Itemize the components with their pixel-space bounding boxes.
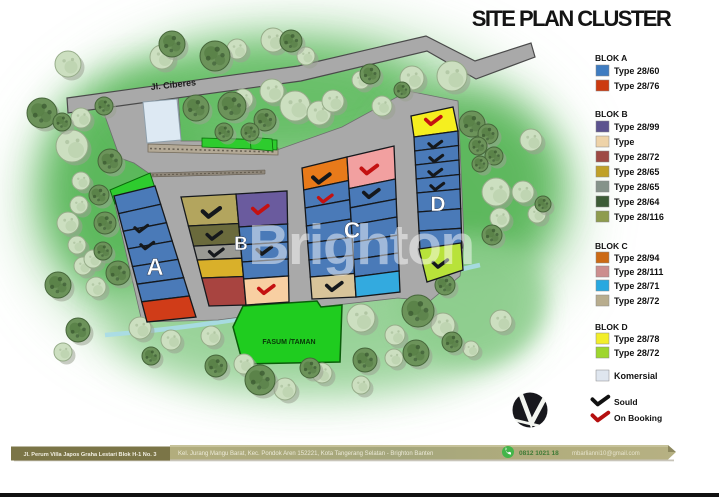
svg-text:SITE PLAN CLUSTER: SITE PLAN CLUSTER <box>472 6 672 31</box>
svg-text:Type 28/72: Type 28/72 <box>614 348 659 358</box>
svg-text:Type 28/116: Type 28/116 <box>614 212 664 222</box>
svg-text:Type 28/111: Type 28/111 <box>614 267 663 277</box>
svg-text:Jl. Perum Villa Japos Graha Le: Jl. Perum Villa Japos Graha Lestari Blok… <box>24 452 157 458</box>
svg-text:Type 28/78: Type 28/78 <box>614 334 659 344</box>
svg-text:A: A <box>146 254 163 281</box>
svg-text:Sould: Sould <box>614 397 638 407</box>
svg-text:BLOK D: BLOK D <box>595 322 628 332</box>
svg-text:Type 28/65: Type 28/65 <box>614 182 659 192</box>
svg-text:Type 28/71: Type 28/71 <box>614 281 659 291</box>
svg-text:Type 28/64: Type 28/64 <box>614 197 659 207</box>
svg-text:Type 28/72: Type 28/72 <box>614 152 659 162</box>
svg-text:FASUM /TAMAN: FASUM /TAMAN <box>262 339 315 346</box>
svg-text:Type 28/76: Type 28/76 <box>614 81 659 91</box>
svg-text:Type 28/65: Type 28/65 <box>614 167 659 177</box>
svg-text:Komersial: Komersial <box>614 371 658 381</box>
svg-text:On Booking: On Booking <box>614 413 662 423</box>
svg-text:Type 28/94: Type 28/94 <box>614 253 659 263</box>
svg-text:Type 28/60: Type 28/60 <box>614 66 659 76</box>
svg-text:BLOK A: BLOK A <box>595 53 627 63</box>
svg-text:BLOK B: BLOK B <box>595 109 628 119</box>
svg-text:BLOK C: BLOK C <box>595 241 628 251</box>
svg-text:Type: Type <box>614 137 634 147</box>
svg-text:Brighton: Brighton <box>248 213 473 277</box>
svg-text:0812 1021 18: 0812 1021 18 <box>519 450 559 457</box>
svg-text:Kel. Jurang Mangu Barat, Kec.: Kel. Jurang Mangu Barat, Kec. Pondok Are… <box>178 451 433 457</box>
svg-text:B: B <box>234 234 248 255</box>
svg-text:Type 28/99: Type 28/99 <box>614 122 659 132</box>
svg-text:mbarlianni10@gmail.com: mbarlianni10@gmail.com <box>572 451 640 457</box>
svg-text:Type 28/72: Type 28/72 <box>614 296 659 306</box>
